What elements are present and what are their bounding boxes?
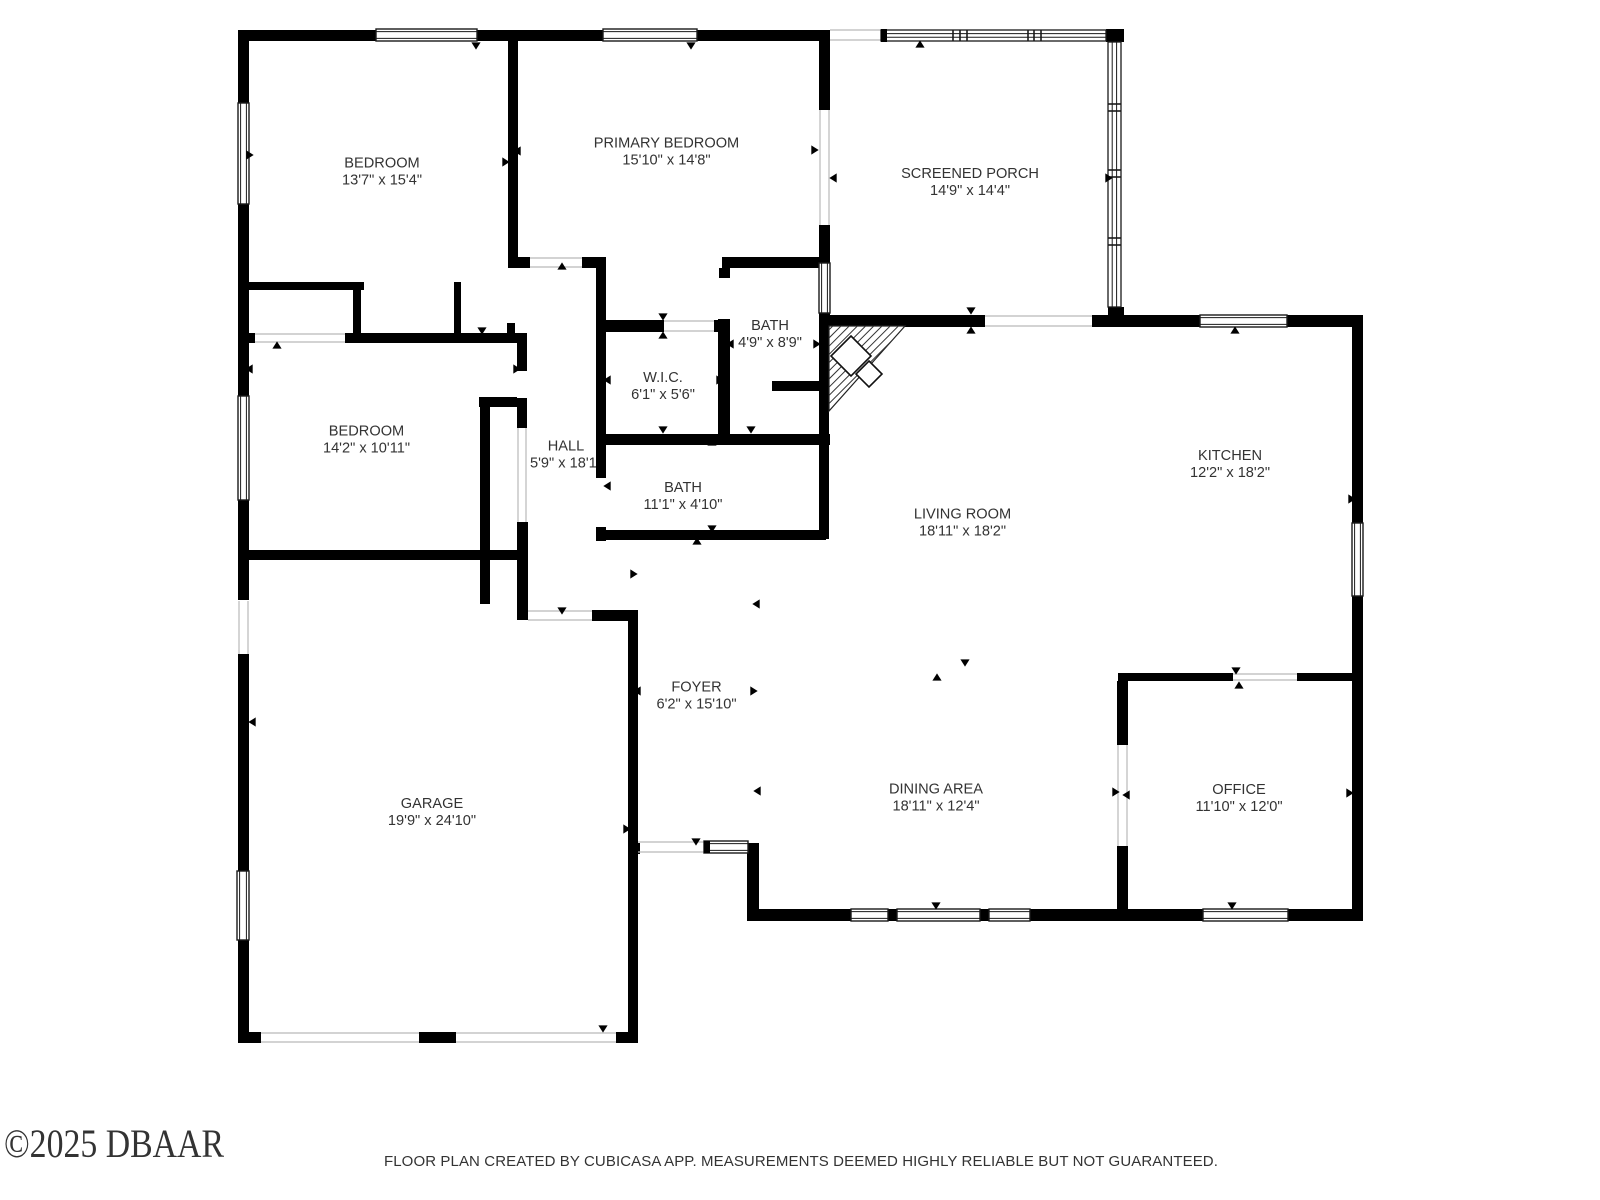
svg-text:HALL: HALL (548, 439, 585, 455)
svg-text:14'2" x 10'11": 14'2" x 10'11" (323, 441, 410, 457)
svg-text:14'9" x 14'4": 14'9" x 14'4" (930, 183, 1010, 199)
svg-text:18'11" x 18'2": 18'11" x 18'2" (919, 524, 1006, 540)
svg-text:BATH: BATH (664, 480, 702, 496)
svg-text:11'1" x 4'10": 11'1" x 4'10" (644, 497, 723, 513)
svg-text:6'1" x 5'6": 6'1" x 5'6" (631, 387, 695, 403)
svg-text:OFFICE: OFFICE (1212, 782, 1266, 798)
svg-text:DINING AREA: DINING AREA (889, 782, 983, 798)
svg-text:18'11" x 12'4": 18'11" x 12'4" (892, 799, 979, 815)
svg-text:6'2" x 15'10": 6'2" x 15'10" (656, 697, 736, 713)
svg-text:5'9" x 18'1": 5'9" x 18'1" (530, 456, 602, 472)
svg-text:FOYER: FOYER (671, 680, 721, 696)
svg-text:12'2" x 18'2": 12'2" x 18'2" (1190, 465, 1270, 481)
svg-text:SCREENED PORCH: SCREENED PORCH (901, 166, 1039, 182)
svg-text:LIVING ROOM: LIVING ROOM (914, 507, 1011, 523)
svg-text:11'10" x 12'0": 11'10" x 12'0" (1195, 799, 1282, 815)
svg-text:KITCHEN: KITCHEN (1198, 448, 1262, 464)
svg-text:FLOOR PLAN CREATED BY CUBICASA: FLOOR PLAN CREATED BY CUBICASA APP. MEAS… (384, 1153, 1218, 1170)
svg-text:W.I.C.: W.I.C. (643, 370, 683, 386)
svg-text:13'7" x 15'4": 13'7" x 15'4" (342, 172, 422, 188)
svg-text:15'10" x 14'8": 15'10" x 14'8" (622, 153, 710, 169)
svg-text:©2025 DBAAR: ©2025 DBAAR (4, 1121, 224, 1166)
svg-text:BEDROOM: BEDROOM (344, 155, 419, 171)
svg-text:BATH: BATH (751, 318, 789, 334)
svg-text:BEDROOM: BEDROOM (329, 424, 404, 440)
svg-text:PRIMARY BEDROOM: PRIMARY BEDROOM (594, 136, 739, 152)
svg-text:19'9" x 24'10": 19'9" x 24'10" (388, 813, 476, 829)
svg-text:4'9" x 8'9": 4'9" x 8'9" (738, 335, 802, 351)
svg-text:GARAGE: GARAGE (401, 796, 464, 812)
